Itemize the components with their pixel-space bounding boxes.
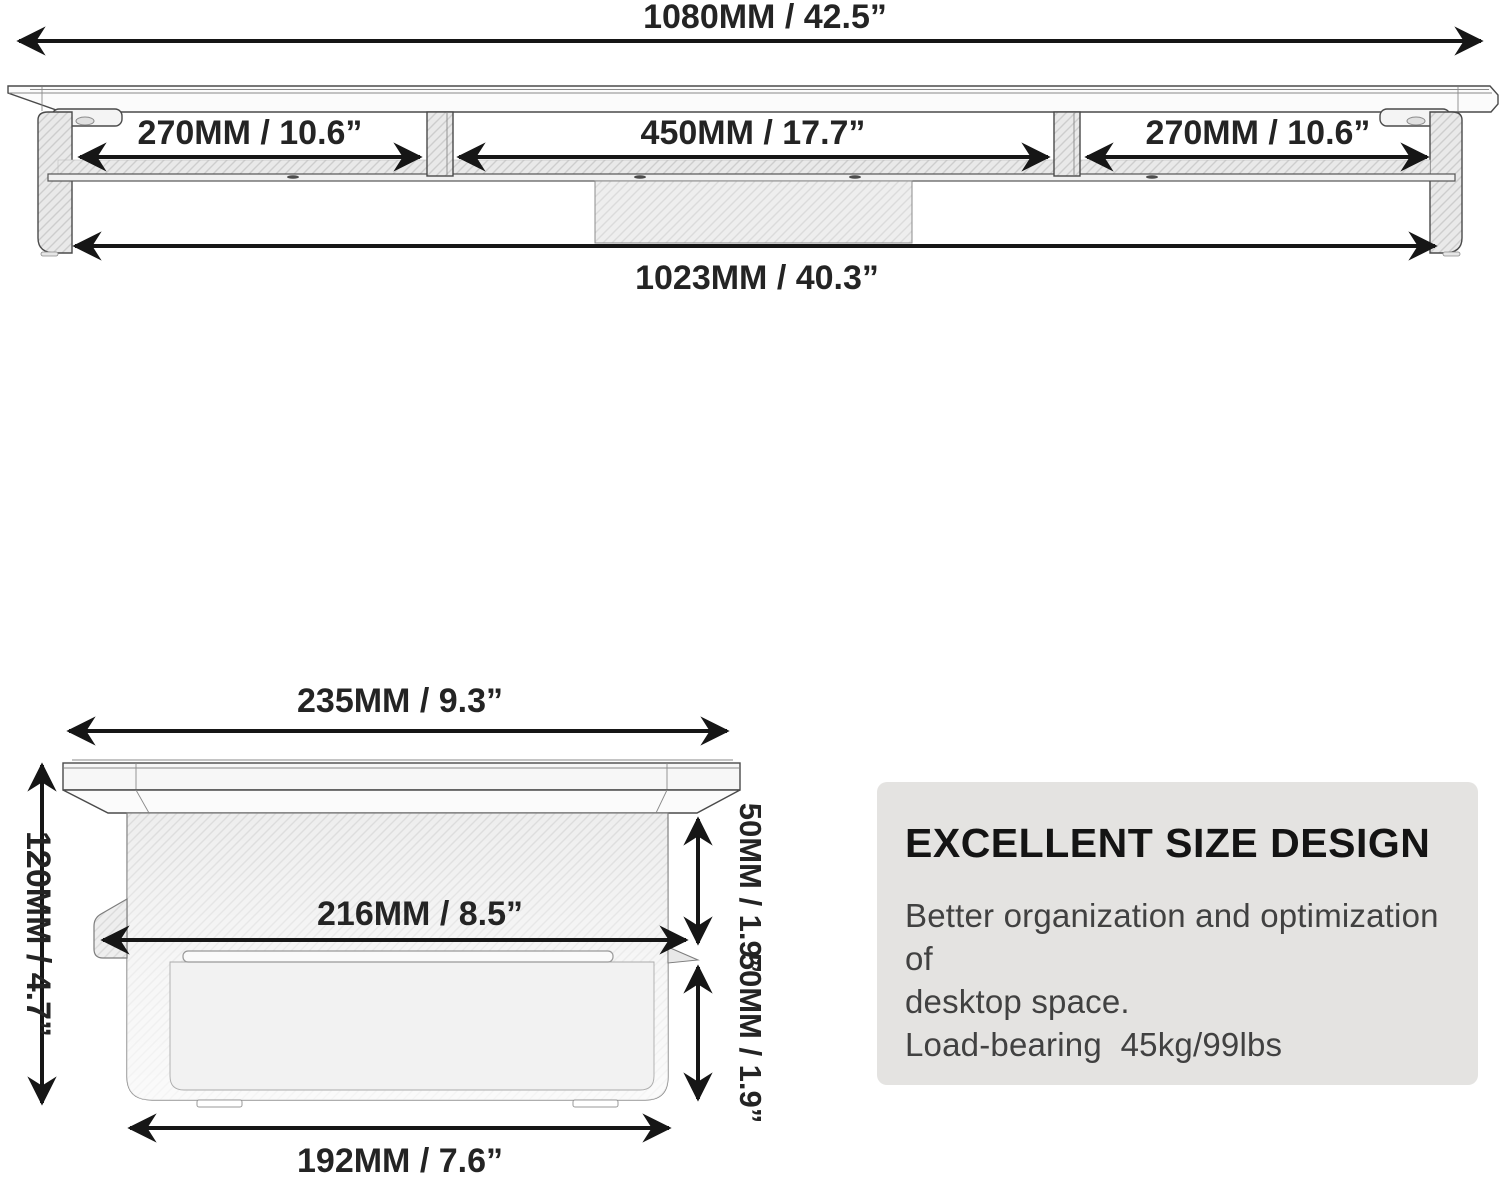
dim-label-right-section: 270MM / 10.6”: [1146, 114, 1371, 152]
info-panel-body: Better organization and optimization of …: [905, 894, 1450, 1066]
left-leg-foot: [41, 252, 58, 256]
shelf-board: [48, 174, 1455, 181]
info-panel-title: EXCELLENT SIZE DESIGN: [905, 820, 1450, 867]
info-panel: EXCELLENT SIZE DESIGN Better organizatio…: [877, 782, 1478, 1085]
left-leg: [38, 112, 72, 253]
dim-label-left-section: 270MM / 10.6”: [138, 114, 363, 152]
right-leg: [1430, 112, 1462, 253]
product-dimension-sheet: 1080MM / 42.5” 270MM / 10.6”: [0, 0, 1500, 1177]
info-line-3: Load-bearing 45kg/99lbs: [905, 1023, 1450, 1066]
dim-label-inner-width: 1023MM / 40.3”: [635, 259, 879, 297]
info-line-2: desktop space.: [905, 980, 1450, 1023]
side-right-tab: [668, 947, 698, 963]
dim-label-lower-clearance: 50MM / 1.9”: [733, 953, 768, 1124]
dim-label-top-depth: 235MM / 9.3”: [297, 682, 503, 720]
side-slot: [183, 951, 613, 962]
info-line-1: Better organization and optimization of: [905, 894, 1450, 980]
dim-label-inner-depth: 216MM / 8.5”: [317, 895, 523, 933]
side-left-foot: [197, 1100, 242, 1107]
dim-label-total-width: 1080MM / 42.5”: [643, 0, 887, 36]
side-top-board: [63, 763, 740, 790]
side-body-front-panel: [170, 962, 654, 1090]
center-drawer: [595, 181, 912, 243]
side-right-foot: [573, 1100, 618, 1107]
right-leg-foot: [1443, 252, 1460, 256]
right-divider: [1054, 112, 1080, 176]
dim-label-middle-section: 450MM / 17.7”: [641, 114, 866, 152]
front-view: 1080MM / 42.5” 270MM / 10.6”: [8, 0, 1498, 297]
side-view: 235MM / 9.3” 120MM / 4.7” 216MM / 8.5”: [19, 682, 768, 1177]
shelf-surface: [58, 160, 1430, 174]
side-top-board-bevel: [63, 790, 740, 813]
dim-label-upper-clearance: 50MM / 1.9”: [733, 803, 768, 974]
side-left-hook: [94, 899, 127, 958]
dim-label-base-depth: 192MM / 7.6”: [297, 1142, 503, 1177]
left-divider: [427, 112, 453, 176]
dim-label-height: 120MM / 4.7”: [19, 831, 57, 1037]
